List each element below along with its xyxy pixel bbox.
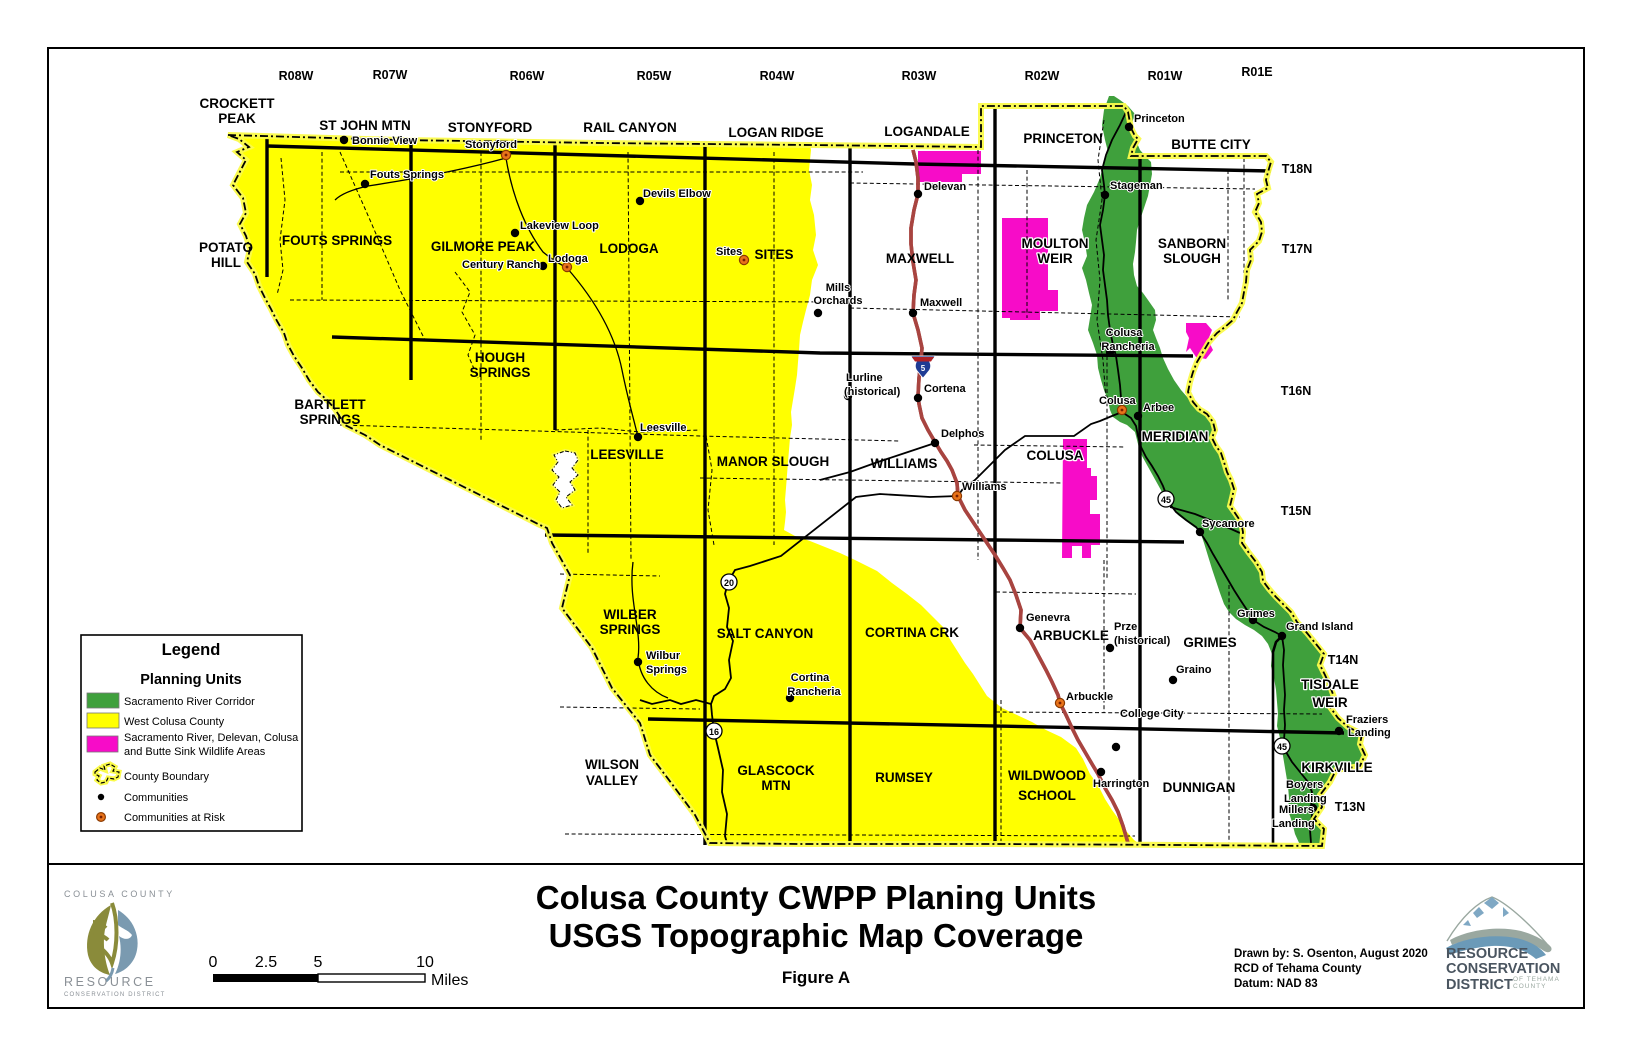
svg-text:RESOURCE: RESOURCE	[1446, 946, 1529, 962]
svg-text:R01W: R01W	[1148, 69, 1183, 83]
svg-text:GILMORE PEAK: GILMORE PEAK	[431, 239, 536, 254]
svg-text:16: 16	[709, 727, 719, 737]
svg-text:LOGANDALE: LOGANDALE	[884, 124, 970, 139]
svg-text:SPRINGS: SPRINGS	[470, 365, 531, 380]
svg-text:ST JOHN MTN: ST JOHN MTN	[319, 118, 411, 133]
svg-text:(historical): (historical)	[1114, 635, 1171, 647]
svg-text:SPRINGS: SPRINGS	[300, 412, 361, 427]
svg-text:MOULTON: MOULTON	[1022, 236, 1089, 251]
svg-text:CORTINA CRK: CORTINA CRK	[865, 625, 959, 640]
svg-text:CONSERVATION: CONSERVATION	[1446, 961, 1560, 977]
svg-text:Communities at Risk: Communities at Risk	[124, 812, 225, 824]
svg-text:Graino: Graino	[1176, 664, 1212, 676]
svg-text:LODOGA: LODOGA	[599, 241, 658, 256]
svg-text:BARTLETT: BARTLETT	[294, 397, 366, 412]
svg-text:Rancheria: Rancheria	[1101, 341, 1155, 353]
svg-text:USGS Topographic Map Coverage: USGS Topographic Map Coverage	[549, 917, 1084, 954]
svg-text:SCHOOL: SCHOOL	[1018, 788, 1076, 803]
svg-text:R04W: R04W	[760, 69, 795, 83]
svg-text:R08W: R08W	[279, 69, 314, 83]
svg-text:T16N: T16N	[1281, 384, 1312, 398]
svg-text:SANBORN: SANBORN	[1158, 236, 1226, 251]
svg-text:DISTRICT: DISTRICT	[1446, 977, 1513, 993]
svg-text:MAXWELL: MAXWELL	[886, 251, 954, 266]
svg-text:WEIR: WEIR	[1037, 251, 1072, 266]
svg-text:Fouts Springs: Fouts Springs	[370, 169, 444, 181]
svg-text:HILL: HILL	[211, 255, 241, 270]
svg-text:WILLIAMS: WILLIAMS	[871, 456, 938, 471]
svg-text:Genevra: Genevra	[1026, 612, 1071, 624]
svg-text:Lakeview Loop: Lakeview Loop	[520, 220, 599, 232]
svg-text:20: 20	[724, 578, 734, 588]
svg-text:MTN: MTN	[761, 778, 790, 793]
svg-text:Sacramento River, Delevan, Col: Sacramento River, Delevan, Colusa	[124, 732, 299, 744]
svg-text:R01E: R01E	[1241, 65, 1272, 79]
svg-text:SLOUGH: SLOUGH	[1163, 251, 1221, 266]
svg-text:CONSERVATION DISTRICT: CONSERVATION DISTRICT	[64, 992, 166, 998]
svg-text:MANOR SLOUGH: MANOR SLOUGH	[717, 454, 830, 469]
svg-text:T15N: T15N	[1281, 504, 1312, 518]
svg-text:GRIMES: GRIMES	[1183, 635, 1236, 650]
svg-text:T14N: T14N	[1328, 653, 1359, 667]
svg-text:Stageman: Stageman	[1110, 180, 1163, 192]
svg-text:Planning Units: Planning Units	[140, 672, 242, 688]
svg-text:Sycamore: Sycamore	[1202, 518, 1255, 530]
svg-text:VALLEY: VALLEY	[586, 773, 638, 788]
svg-text:ARBUCKLE: ARBUCKLE	[1033, 628, 1109, 643]
svg-text:R05W: R05W	[637, 69, 672, 83]
svg-text:GLASCOCK: GLASCOCK	[737, 763, 815, 778]
svg-text:Orchards: Orchards	[814, 295, 863, 307]
svg-text:Drawn by: S. Osenton, August 2: Drawn by: S. Osenton, August 2020	[1234, 948, 1428, 960]
svg-text:Landing: Landing	[1272, 818, 1315, 830]
svg-text:SITES: SITES	[754, 247, 793, 262]
svg-text:Devils Elbow: Devils Elbow	[643, 188, 711, 200]
svg-text:Prze: Prze	[1114, 621, 1137, 633]
svg-text:Lodoga: Lodoga	[548, 253, 589, 265]
svg-text:BUTTE CITY: BUTTE CITY	[1171, 137, 1251, 152]
svg-text:PRINCETON: PRINCETON	[1023, 131, 1102, 146]
svg-text:LOGAN RIDGE: LOGAN RIDGE	[728, 125, 823, 140]
svg-text:HOUGH: HOUGH	[475, 350, 525, 365]
svg-text:Bonnie View: Bonnie View	[352, 135, 418, 147]
svg-text:MERIDIAN: MERIDIAN	[1142, 429, 1209, 444]
svg-text:Cortena: Cortena	[924, 383, 966, 395]
svg-text:RCD of Tehama County: RCD of Tehama County	[1234, 963, 1362, 975]
svg-text:Landing: Landing	[1348, 727, 1391, 739]
svg-text:Delevan: Delevan	[924, 181, 966, 193]
svg-text:RAIL CANYON: RAIL CANYON	[583, 120, 677, 135]
svg-text:T13N: T13N	[1335, 800, 1366, 814]
svg-text:Harrington: Harrington	[1093, 778, 1150, 790]
svg-text:R07W: R07W	[373, 68, 408, 82]
svg-text:Cortina: Cortina	[791, 672, 830, 684]
svg-text:Sacramento River Corridor: Sacramento River Corridor	[124, 696, 255, 708]
svg-text:T18N: T18N	[1282, 162, 1313, 176]
svg-text:COLUSA: COLUSA	[1027, 448, 1084, 463]
svg-text:West Colusa County: West Colusa County	[124, 716, 225, 728]
svg-text:R02W: R02W	[1025, 69, 1060, 83]
svg-text:RUMSEY: RUMSEY	[875, 770, 933, 785]
svg-text:Stonyford: Stonyford	[465, 139, 517, 151]
svg-text:DUNNIGAN: DUNNIGAN	[1163, 780, 1236, 795]
svg-text:WILDWOOD: WILDWOOD	[1008, 768, 1086, 783]
svg-text:Boyers: Boyers	[1286, 779, 1323, 791]
svg-text:WILBER: WILBER	[603, 607, 656, 622]
svg-text:Mills: Mills	[826, 282, 850, 294]
svg-text:Williams: Williams	[962, 481, 1007, 493]
svg-text:FOUTS SPRINGS: FOUTS SPRINGS	[282, 233, 392, 248]
svg-text:Arbuckle: Arbuckle	[1066, 691, 1113, 703]
svg-text:Princeton: Princeton	[1134, 113, 1185, 125]
svg-text:(historical): (historical)	[844, 386, 901, 398]
svg-text:Maxwell: Maxwell	[920, 297, 962, 309]
svg-text:10: 10	[416, 954, 434, 971]
svg-text:POTATO: POTATO	[199, 240, 253, 255]
svg-text:TISDALE: TISDALE	[1301, 677, 1359, 692]
svg-text:Miles: Miles	[431, 972, 468, 989]
svg-text:Grand Island: Grand Island	[1286, 621, 1353, 633]
svg-text:Legend: Legend	[162, 641, 221, 659]
svg-text:RESOURCE: RESOURCE	[64, 975, 156, 989]
svg-text:and Butte Sink Wildlife Areas: and Butte Sink Wildlife Areas	[124, 746, 266, 758]
svg-text:5: 5	[314, 954, 323, 971]
svg-text:Century Ranch: Century Ranch	[462, 259, 541, 271]
svg-text:OF TEHAMA: OF TEHAMA	[1513, 976, 1560, 983]
svg-text:STONYFORD: STONYFORD	[448, 120, 533, 135]
svg-text:0: 0	[209, 954, 218, 971]
svg-text:Rancheria: Rancheria	[787, 686, 841, 698]
svg-text:R06W: R06W	[510, 69, 545, 83]
svg-text:Leesville: Leesville	[640, 422, 686, 434]
svg-text:Colusa: Colusa	[1099, 395, 1137, 407]
svg-text:County Boundary: County Boundary	[124, 771, 209, 783]
svg-text:Colusa: Colusa	[1106, 327, 1144, 339]
svg-text:PEAK: PEAK	[218, 111, 256, 126]
svg-text:Springs: Springs	[646, 664, 687, 676]
svg-text:T17N: T17N	[1282, 242, 1313, 256]
svg-text:SPRINGS: SPRINGS	[600, 622, 661, 637]
svg-text:45: 45	[1277, 742, 1287, 752]
svg-text:KIRKVILLE: KIRKVILLE	[1301, 760, 1372, 775]
svg-text:WEIR: WEIR	[1312, 695, 1347, 710]
svg-text:Sites: Sites	[716, 246, 742, 258]
svg-text:COLUSA COUNTY: COLUSA COUNTY	[64, 889, 175, 899]
svg-text:Millers: Millers	[1279, 804, 1314, 816]
svg-text:COUNTY: COUNTY	[1513, 983, 1546, 990]
svg-text:WILSON: WILSON	[585, 757, 639, 772]
svg-text:Wilbur: Wilbur	[646, 650, 681, 662]
svg-text:R03W: R03W	[902, 69, 937, 83]
svg-text:LEESVILLE: LEESVILLE	[590, 447, 664, 462]
svg-text:Datum: NAD 83: Datum: NAD 83	[1234, 978, 1318, 990]
svg-text:SALT CANYON: SALT CANYON	[717, 626, 814, 641]
svg-text:Figure A: Figure A	[782, 968, 850, 987]
svg-text:Arbee: Arbee	[1143, 402, 1174, 414]
svg-text:2.5: 2.5	[255, 954, 277, 971]
svg-text:Delphos: Delphos	[941, 428, 984, 440]
svg-text:5: 5	[921, 364, 926, 373]
svg-text:Colusa County CWPP Planing Uni: Colusa County CWPP Planing Units	[536, 879, 1096, 916]
svg-text:Communities: Communities	[124, 792, 189, 804]
svg-text:CROCKETT: CROCKETT	[200, 96, 276, 111]
svg-text:Grimes: Grimes	[1237, 608, 1275, 620]
svg-text:College City: College City	[1120, 708, 1184, 720]
svg-text:45: 45	[1161, 495, 1171, 505]
svg-text:Lurline: Lurline	[846, 372, 883, 384]
svg-text:Fraziers: Fraziers	[1346, 714, 1388, 726]
